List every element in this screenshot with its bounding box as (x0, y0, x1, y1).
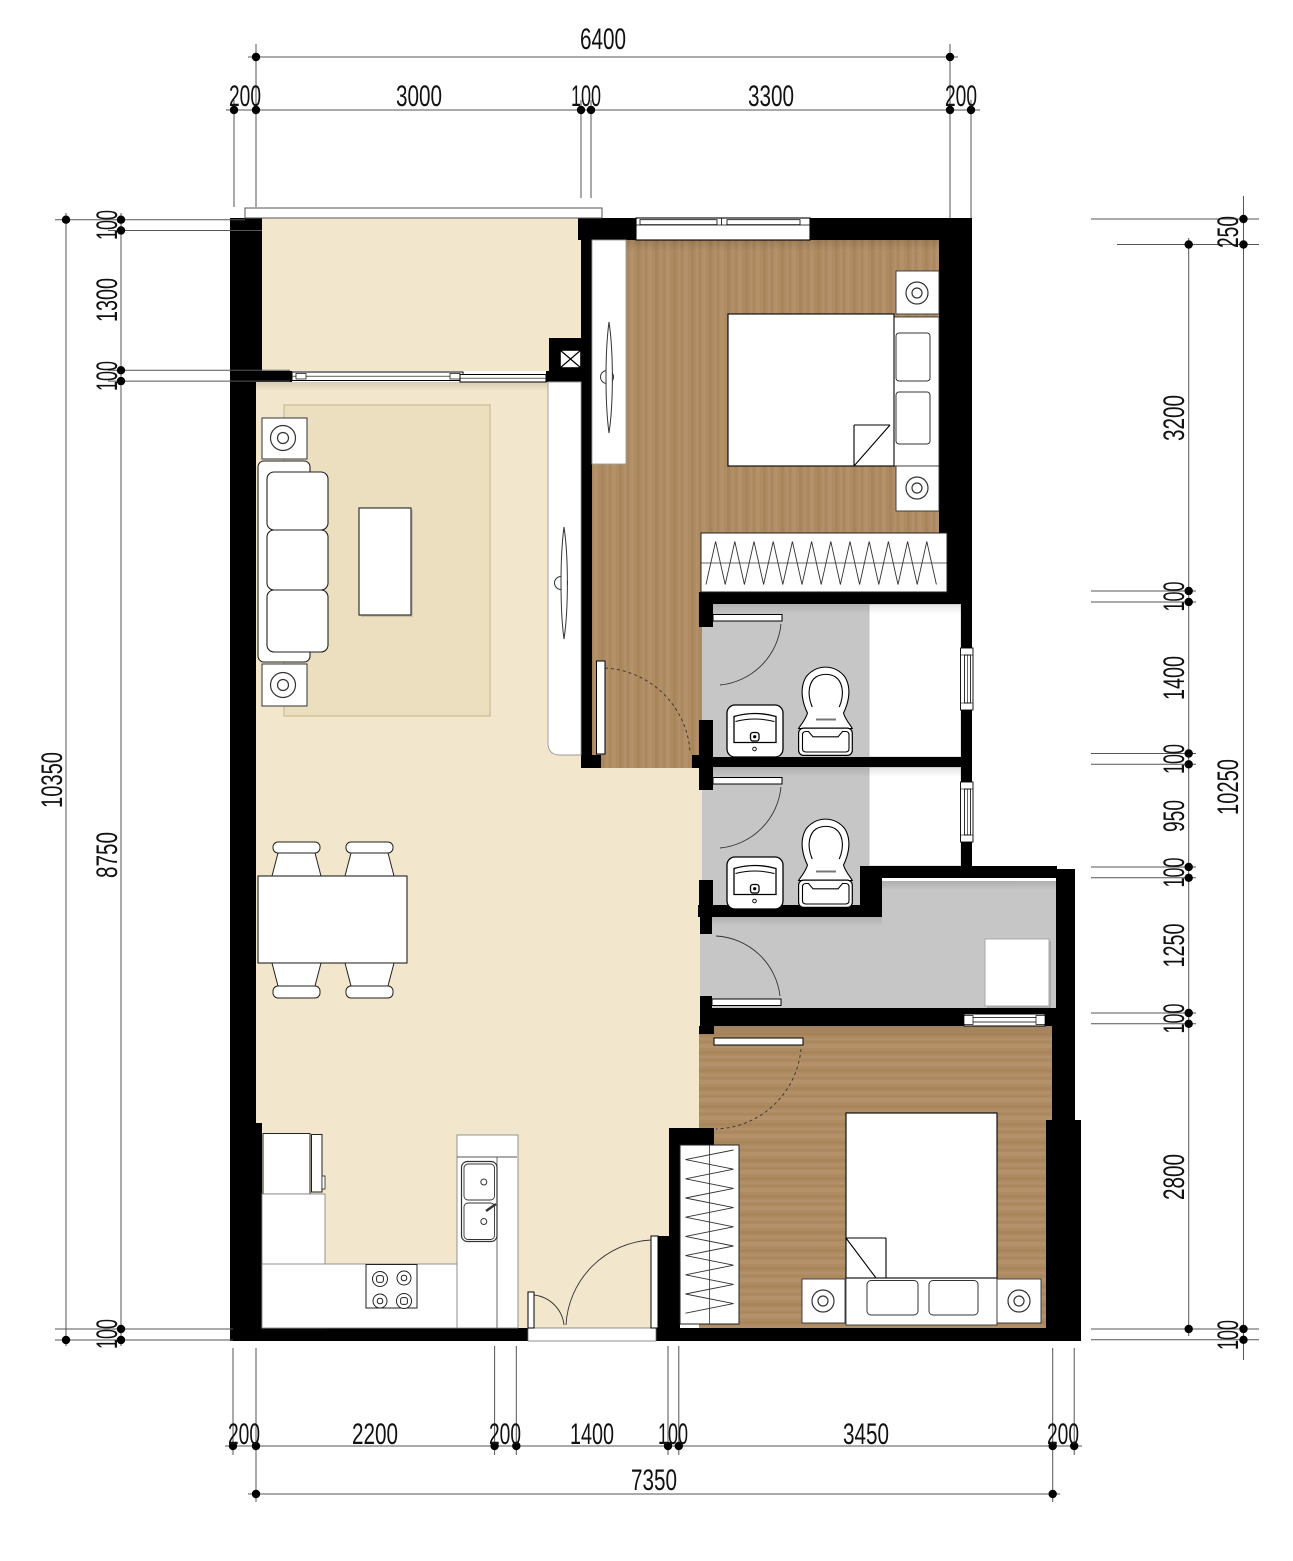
svg-text:3450: 3450 (843, 1418, 889, 1451)
svg-text:200: 200 (1047, 1418, 1079, 1451)
svg-text:200: 200 (945, 80, 977, 113)
svg-text:100: 100 (571, 80, 601, 113)
svg-text:2200: 2200 (352, 1418, 398, 1451)
svg-text:3000: 3000 (396, 80, 442, 113)
svg-text:100: 100 (1158, 582, 1191, 612)
svg-text:950: 950 (1158, 800, 1191, 832)
svg-text:100: 100 (1158, 1004, 1191, 1034)
svg-text:1400: 1400 (570, 1418, 614, 1451)
svg-text:200: 200 (229, 80, 261, 113)
svg-text:6400: 6400 (580, 23, 626, 56)
svg-text:3200: 3200 (1158, 395, 1191, 441)
svg-text:100: 100 (1158, 744, 1191, 774)
svg-text:10250: 10250 (1212, 759, 1245, 815)
svg-text:100: 100 (91, 1319, 124, 1349)
svg-text:1250: 1250 (1158, 924, 1191, 968)
svg-text:1300: 1300 (91, 278, 124, 322)
svg-text:2800: 2800 (1158, 1154, 1191, 1200)
svg-text:100: 100 (91, 210, 124, 240)
svg-text:1400: 1400 (1158, 656, 1191, 700)
svg-text:250: 250 (1212, 216, 1245, 248)
svg-text:7350: 7350 (631, 1464, 677, 1497)
svg-text:100: 100 (1212, 1320, 1245, 1350)
svg-text:100: 100 (1158, 858, 1191, 888)
svg-text:10350: 10350 (36, 752, 69, 808)
svg-text:200: 200 (489, 1418, 521, 1451)
svg-text:200: 200 (228, 1418, 260, 1451)
svg-text:8750: 8750 (91, 832, 124, 878)
svg-text:100: 100 (91, 361, 124, 391)
svg-text:100: 100 (658, 1418, 688, 1451)
svg-text:3300: 3300 (748, 80, 794, 113)
